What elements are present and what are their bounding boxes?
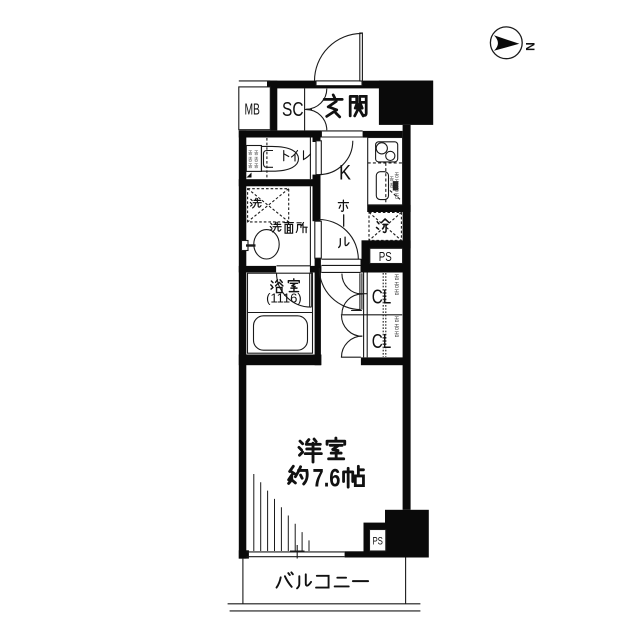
svg-text:CL: CL xyxy=(372,330,392,353)
svg-text:N: N xyxy=(523,42,537,51)
svg-text:(1116): (1116) xyxy=(266,291,302,306)
svg-text:K: K xyxy=(339,161,352,185)
svg-text:PS: PS xyxy=(372,535,383,547)
svg-text:7.6: 7.6 xyxy=(313,464,341,492)
svg-text:CL: CL xyxy=(372,285,392,308)
svg-text:SC: SC xyxy=(282,98,304,121)
svg-text:PS: PS xyxy=(379,249,392,264)
svg-text:MB: MB xyxy=(244,102,260,119)
